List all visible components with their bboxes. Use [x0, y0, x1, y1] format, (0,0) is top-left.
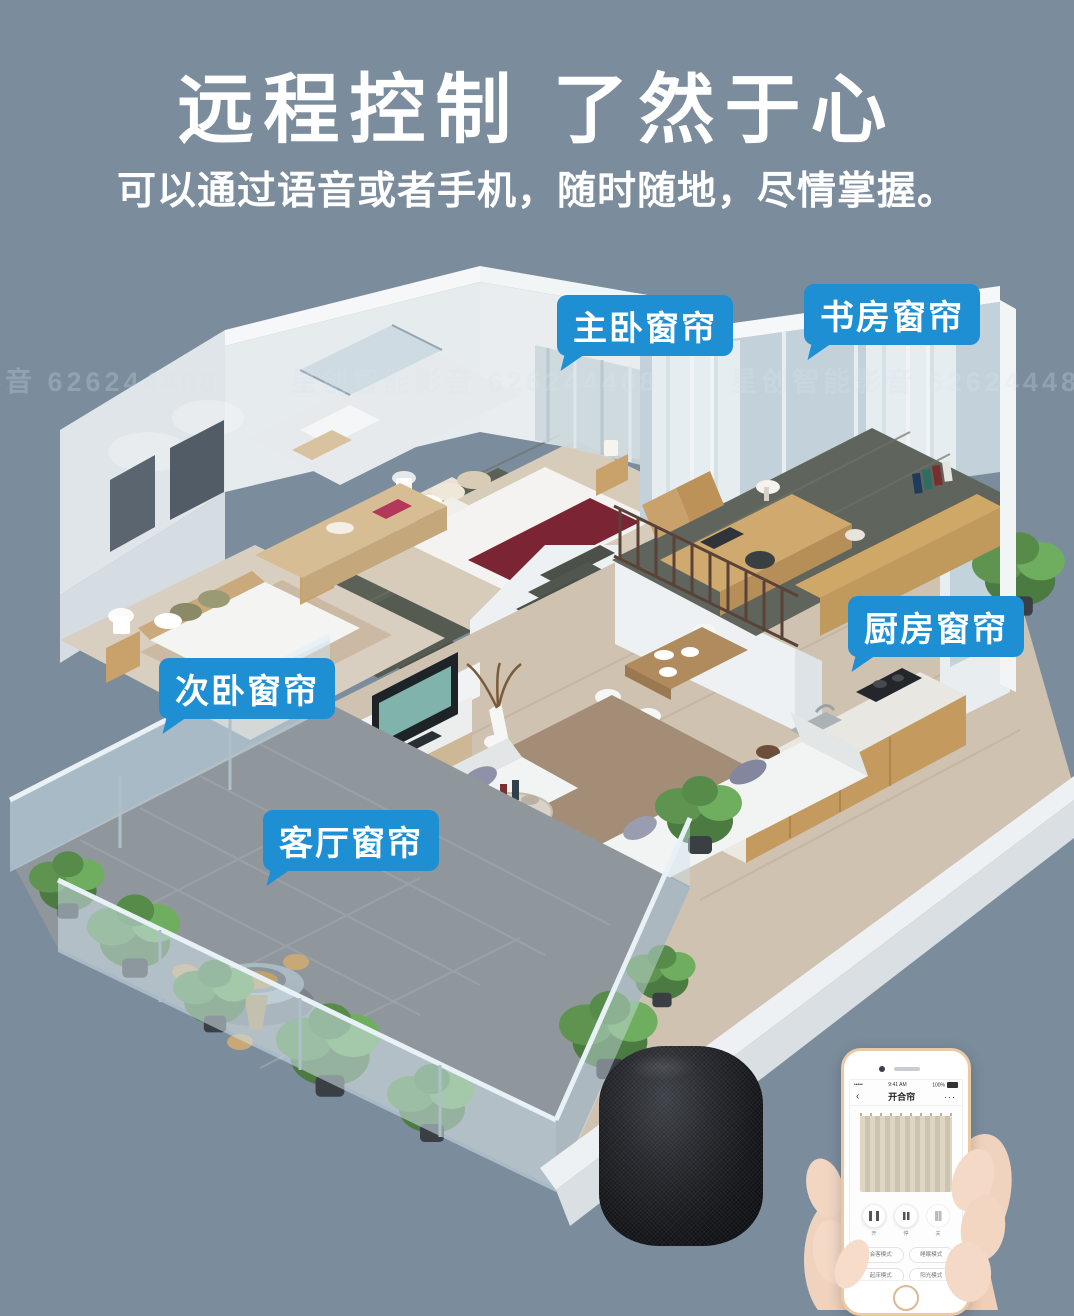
phone-status-bar: ••••• 9:41 AM 100%	[850, 1080, 962, 1088]
watermark-text: 星创智能影音 626244488	[0, 367, 219, 397]
page-title: 远程控制 了然于心	[0, 48, 1074, 158]
close-label: 关	[926, 1230, 950, 1237]
callout-study-curtain: 书房窗帘	[804, 284, 980, 345]
more-menu-icon[interactable]: ···	[944, 1092, 956, 1102]
close-curtain-icon	[932, 1210, 944, 1222]
battery-icon	[947, 1082, 958, 1088]
curtain-controls: 开 停 关	[850, 1200, 962, 1237]
smart-speaker	[599, 1046, 763, 1246]
callout-kitchen-curtain: 厨房窗帘	[848, 596, 1024, 657]
pause-button[interactable]	[894, 1204, 918, 1228]
callout-master-bedroom-curtain: 主卧窗帘	[557, 295, 733, 356]
watermark-text: 星创智能影音 626244488	[290, 367, 659, 397]
open-curtain-icon	[868, 1210, 880, 1222]
app-title: 开合帘	[888, 1090, 915, 1103]
phone-camera-dot	[879, 1066, 885, 1072]
page-subtitle: 可以通过语音或者手机，随时随地，尽情掌握。	[0, 160, 1074, 216]
open-button[interactable]	[862, 1204, 886, 1228]
callout-second-bedroom-curtain: 次卧窗帘	[159, 658, 335, 719]
mode-button-guest[interactable]: 会客模式	[858, 1247, 904, 1263]
mode-button-wakeup[interactable]: 起床模式	[858, 1268, 904, 1281]
app-nav-bar: ‹ 开合帘 ···	[850, 1088, 962, 1106]
pause-icon	[900, 1210, 912, 1222]
pause-control[interactable]: 停	[894, 1204, 918, 1237]
watermark: 星创智能影音 626244488 星创智能影音 626244488 星创智能影音…	[0, 360, 1074, 399]
scene-modes: 会客模式 睡眠模式 起床模式 阳光模式	[850, 1237, 962, 1281]
open-label: 开	[862, 1230, 886, 1237]
smartphone: ••••• 9:41 AM 100% ‹ 开合帘 ··· 开	[841, 1048, 971, 1316]
mode-button-sleep[interactable]: 睡眠模式	[909, 1247, 955, 1263]
pause-label: 停	[894, 1230, 918, 1237]
close-button[interactable]	[926, 1204, 950, 1228]
mode-button-sunlight[interactable]: 阳光模式	[909, 1268, 955, 1281]
callout-living-room-curtain: 客厅窗帘	[263, 810, 439, 871]
back-chevron-icon[interactable]: ‹	[856, 1091, 859, 1102]
status-battery: 100%	[932, 1082, 958, 1088]
poster-page: { "page": { "background": "#7b8c9d", "ac…	[0, 0, 1074, 1310]
status-time: 9:41 AM	[888, 1082, 906, 1088]
watermark-text: 星创智能影音 626244488	[730, 367, 1074, 397]
close-control[interactable]: 关	[926, 1204, 950, 1237]
phone-screen: ••••• 9:41 AM 100% ‹ 开合帘 ··· 开	[849, 1079, 963, 1281]
curtain-preview	[860, 1116, 952, 1192]
signal-dots: •••••	[854, 1082, 863, 1088]
home-button[interactable]	[893, 1285, 919, 1311]
phone-speaker-slit	[894, 1067, 920, 1071]
open-control[interactable]: 开	[862, 1204, 886, 1237]
